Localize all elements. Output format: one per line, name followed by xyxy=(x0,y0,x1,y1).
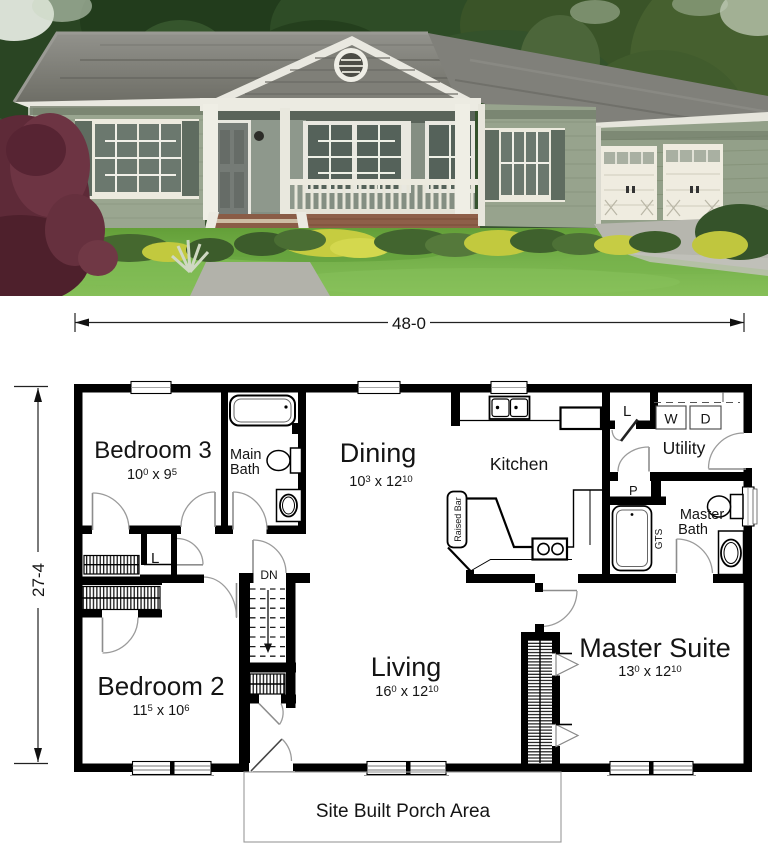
svg-text:GTS: GTS xyxy=(654,528,665,549)
svg-text:L: L xyxy=(151,550,159,567)
svg-text:Raised Bar: Raised Bar xyxy=(453,497,463,542)
svg-text:DN: DN xyxy=(260,568,277,582)
svg-text:100 x 95: 100 x 95 xyxy=(127,467,177,483)
svg-text:Dining: Dining xyxy=(340,438,417,468)
svg-text:115 x 106: 115 x 106 xyxy=(132,703,189,719)
svg-text:Kitchen: Kitchen xyxy=(490,454,548,474)
svg-text:Living: Living xyxy=(371,652,442,682)
svg-text:130 x 1210: 130 x 1210 xyxy=(618,664,681,680)
svg-text:48-0: 48-0 xyxy=(392,314,426,333)
svg-text:Bath: Bath xyxy=(678,522,708,538)
svg-text:Site Built Porch Area: Site Built Porch Area xyxy=(316,801,491,822)
svg-text:D: D xyxy=(700,411,710,427)
svg-text:Utility: Utility xyxy=(663,438,706,458)
svg-text:Bedroom 2: Bedroom 2 xyxy=(97,671,224,701)
svg-text:160 x 1210: 160 x 1210 xyxy=(375,684,438,700)
svg-text:Bath: Bath xyxy=(230,462,260,478)
svg-text:103 x 1210: 103 x 1210 xyxy=(349,474,412,490)
svg-text:Bedroom 3: Bedroom 3 xyxy=(94,437,211,464)
svg-text:W: W xyxy=(664,411,678,427)
svg-text:L: L xyxy=(623,403,631,420)
svg-text:P: P xyxy=(629,483,638,498)
svg-text:Main: Main xyxy=(230,447,261,463)
svg-text:27-4: 27-4 xyxy=(29,563,48,597)
svg-text:Master: Master xyxy=(680,507,724,523)
svg-text:Master Suite: Master Suite xyxy=(579,633,731,663)
